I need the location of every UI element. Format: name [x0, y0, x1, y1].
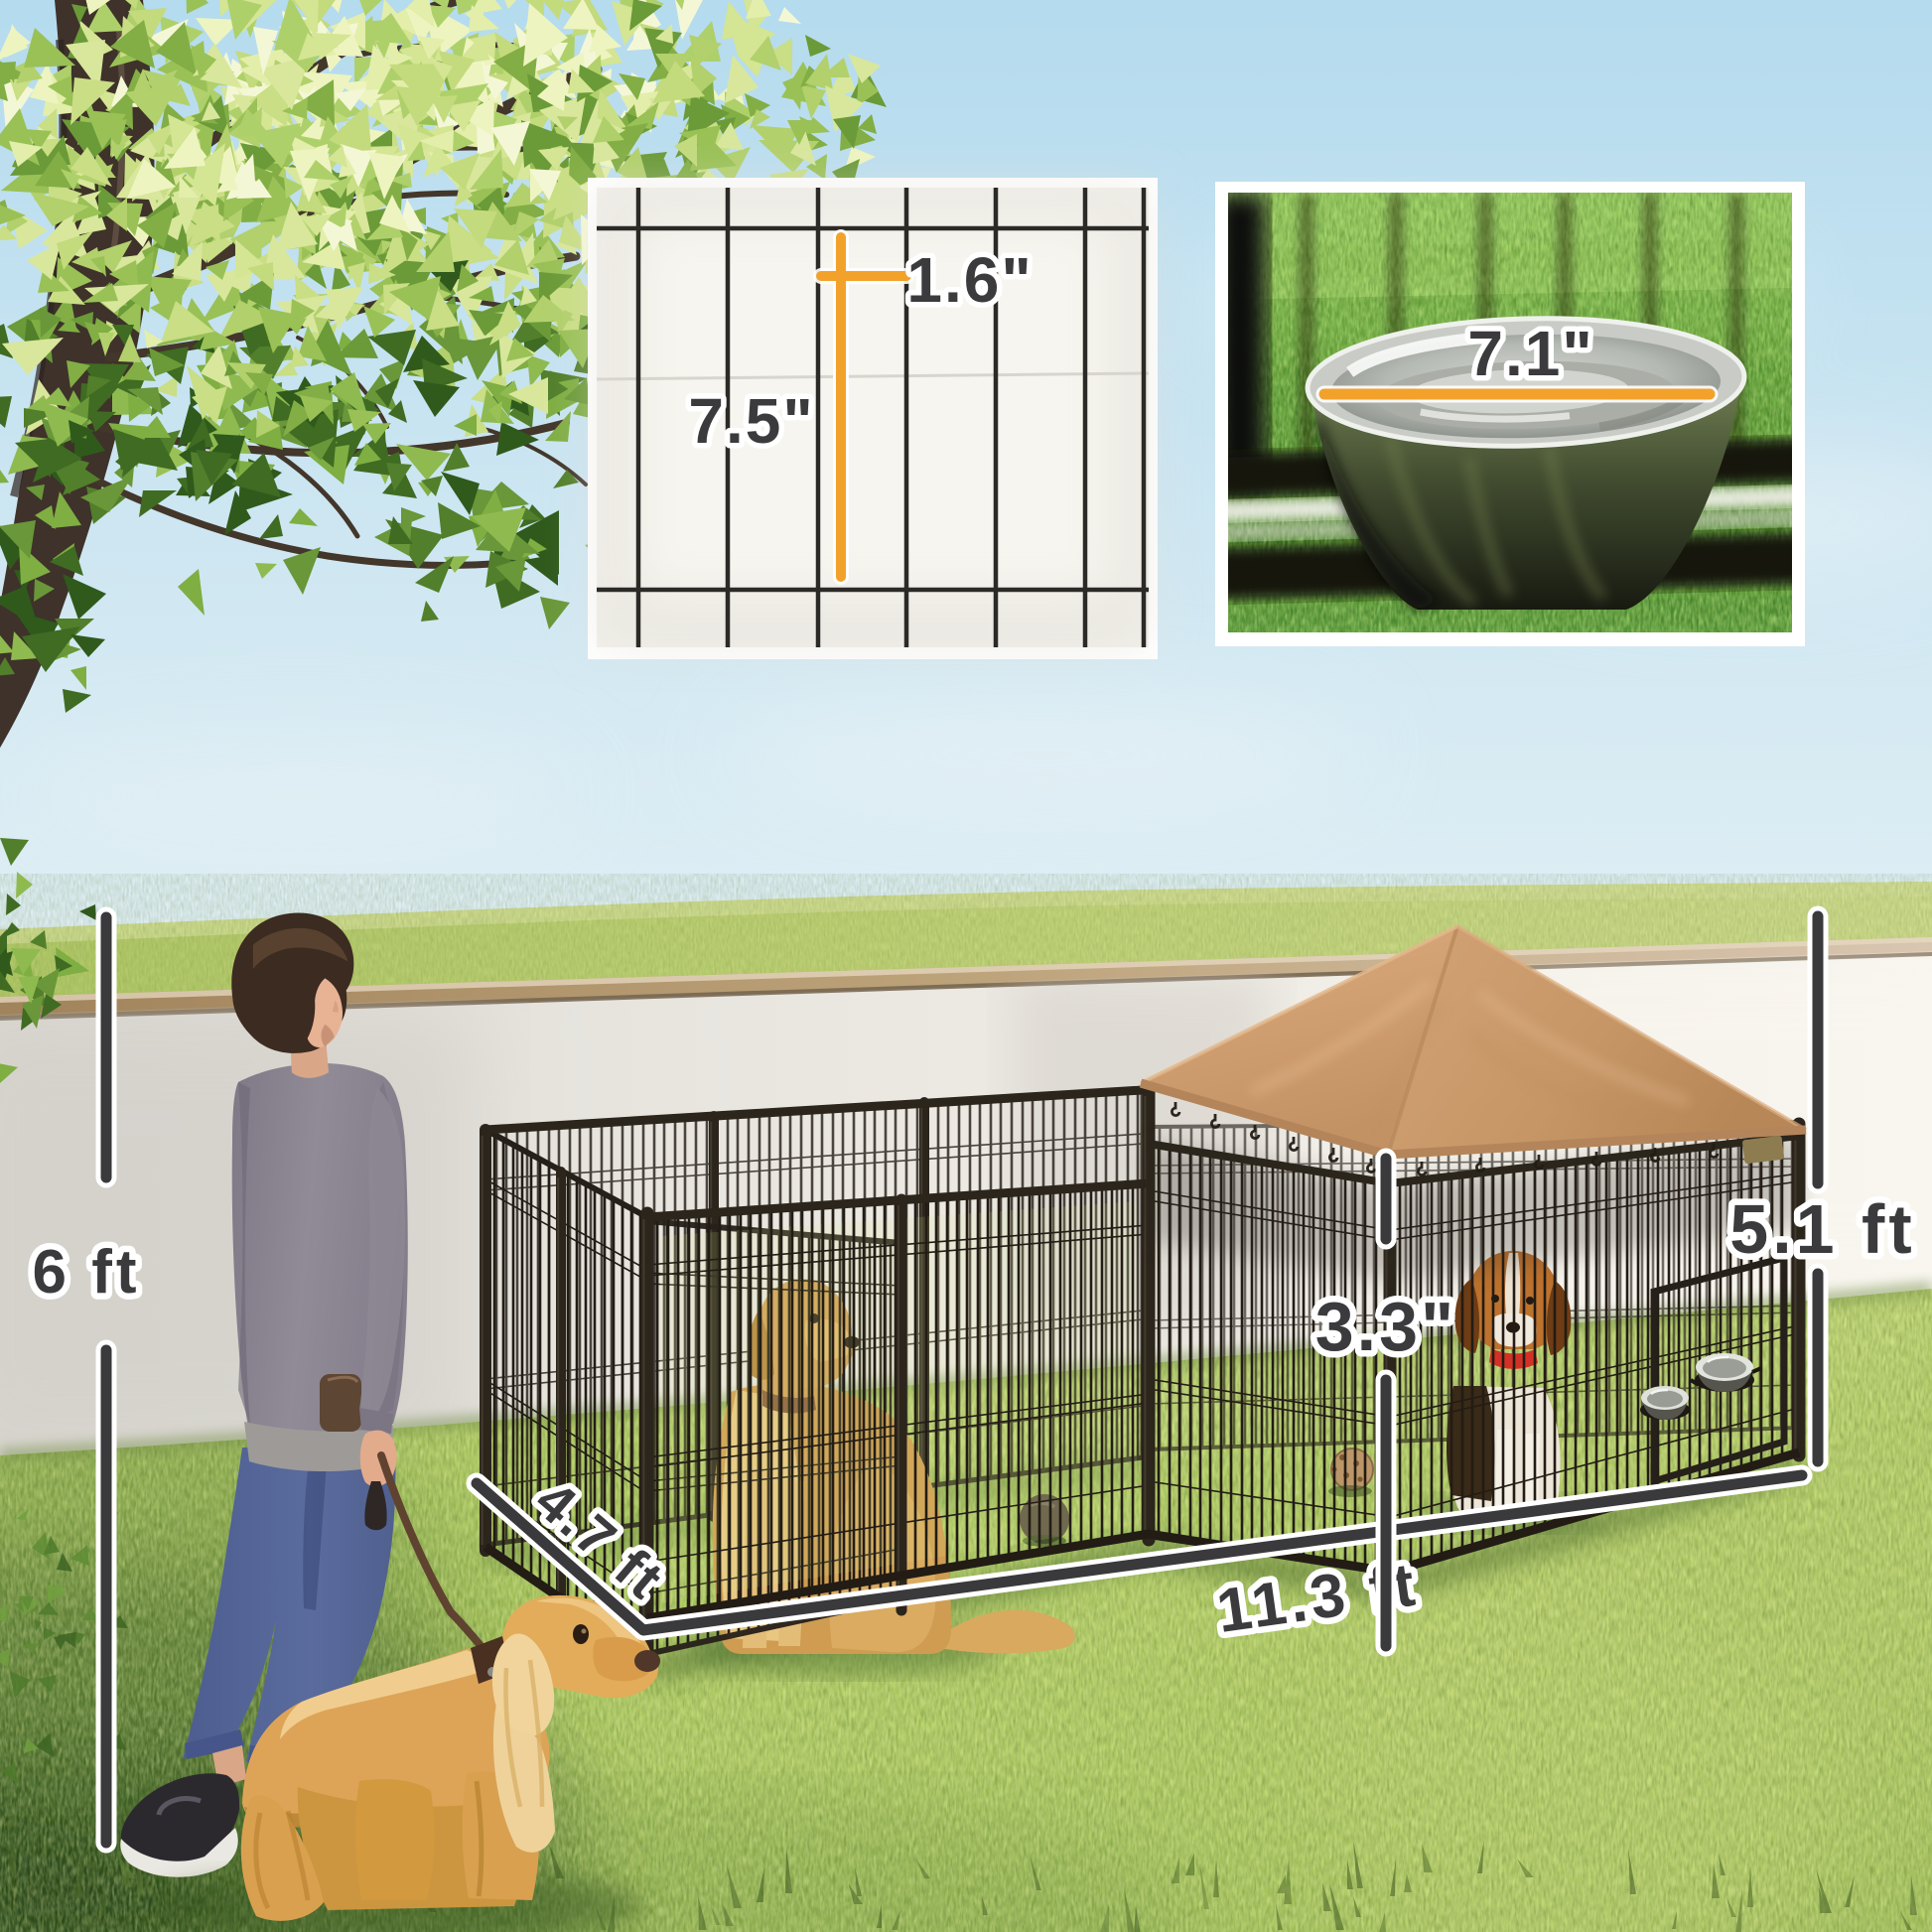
svg-text:3.3": 3.3": [1315, 1288, 1457, 1365]
svg-text:7.1": 7.1": [1467, 318, 1593, 389]
svg-text:1.6": 1.6": [906, 244, 1033, 316]
svg-text:7.5": 7.5": [688, 385, 814, 457]
svg-text:5.1 ft: 5.1 ft: [1729, 1190, 1915, 1268]
svg-text:6 ft: 6 ft: [33, 1238, 141, 1307]
